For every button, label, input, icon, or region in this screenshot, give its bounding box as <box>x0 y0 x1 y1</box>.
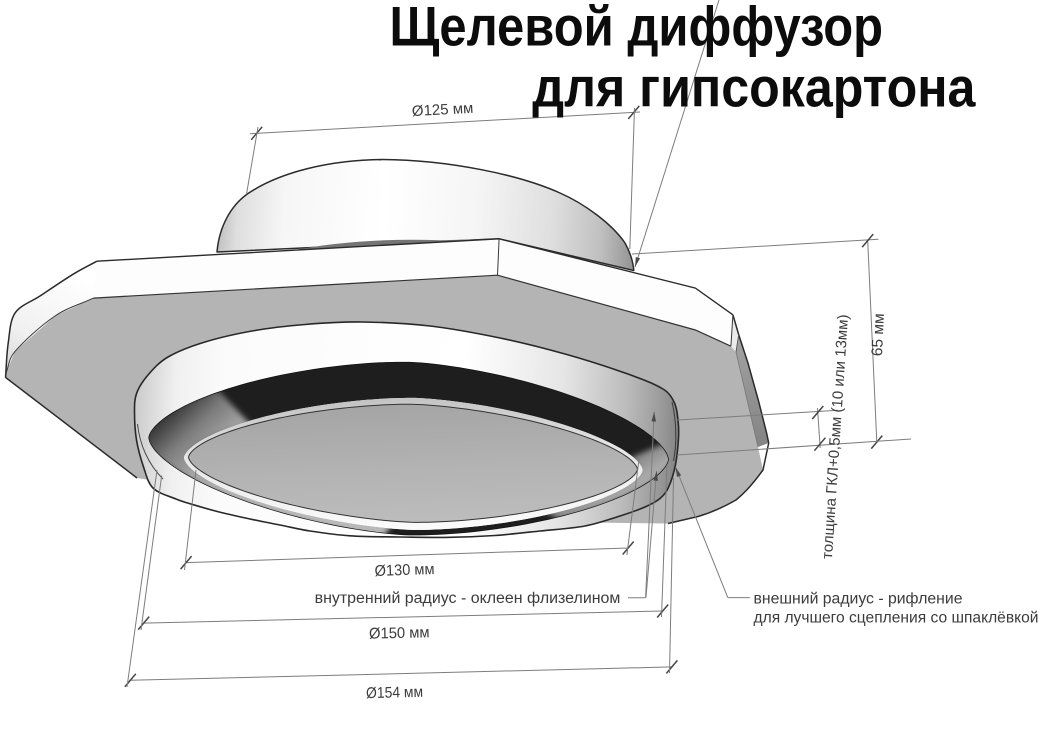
svg-text:65 мм: 65 мм <box>869 313 888 357</box>
svg-text:Ø154 мм: Ø154 мм <box>366 684 423 702</box>
svg-text:Ø125 мм: Ø125 мм <box>411 100 473 120</box>
svg-text:внешний радиус - рифление: внешний радиус - рифление <box>754 591 963 608</box>
svg-text:Щелевой диффузор: Щелевой диффузор <box>390 0 884 58</box>
svg-text:Ø150 мм: Ø150 мм <box>369 624 430 642</box>
svg-text:для лучшего сцепления со шпакл: для лучшего сцепления со шпаклёвкой <box>754 610 1039 627</box>
svg-text:внутренний радиус - оклеен фли: внутренний радиус - оклеен флизелином <box>315 590 621 607</box>
svg-text:для гипсокартона: для гипсокартона <box>532 57 976 119</box>
svg-text:Ø130 мм: Ø130 мм <box>374 561 435 580</box>
